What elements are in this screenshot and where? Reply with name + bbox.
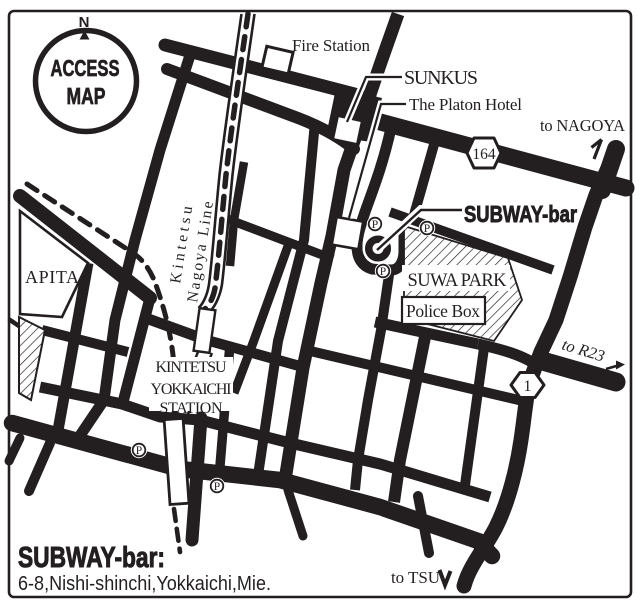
svg-text:P: P [424, 223, 430, 235]
svg-text:The Platon Hotel: The Platon Hotel [409, 95, 522, 114]
svg-text:6-8,Nishi-shinchi,Yokkaichi,Mi: 6-8,Nishi-shinchi,Yokkaichi,Mie. [18, 573, 271, 595]
svg-text:to NAGOYA: to NAGOYA [540, 116, 625, 135]
svg-text:Police Box: Police Box [406, 301, 480, 321]
svg-text:STATION: STATION [160, 400, 223, 417]
svg-text:SUNKUS: SUNKUS [404, 67, 478, 89]
svg-text:KINTETSU: KINTETSU [156, 359, 227, 376]
svg-text:164: 164 [472, 146, 496, 163]
svg-text:SUBWAY-bar:: SUBWAY-bar: [18, 542, 165, 574]
svg-text:N: N [79, 14, 90, 31]
svg-text:SUWA PARK: SUWA PARK [408, 271, 508, 291]
svg-text:P: P [214, 481, 220, 493]
svg-text:P: P [380, 266, 386, 278]
svg-text:ACCESS: ACCESS [51, 55, 120, 81]
svg-text:SUBWAY-bar: SUBWAY-bar [464, 201, 577, 227]
svg-text:Fire Station: Fire Station [292, 36, 371, 55]
svg-text:APITA: APITA [25, 267, 79, 287]
svg-text:P: P [372, 219, 378, 231]
svg-text:1: 1 [524, 378, 532, 395]
svg-text:to TSU: to TSU [391, 568, 440, 587]
svg-text:MAP: MAP [67, 83, 106, 109]
svg-text:P: P [136, 445, 142, 457]
svg-text:YOKKAICHI: YOKKAICHI [151, 381, 232, 398]
